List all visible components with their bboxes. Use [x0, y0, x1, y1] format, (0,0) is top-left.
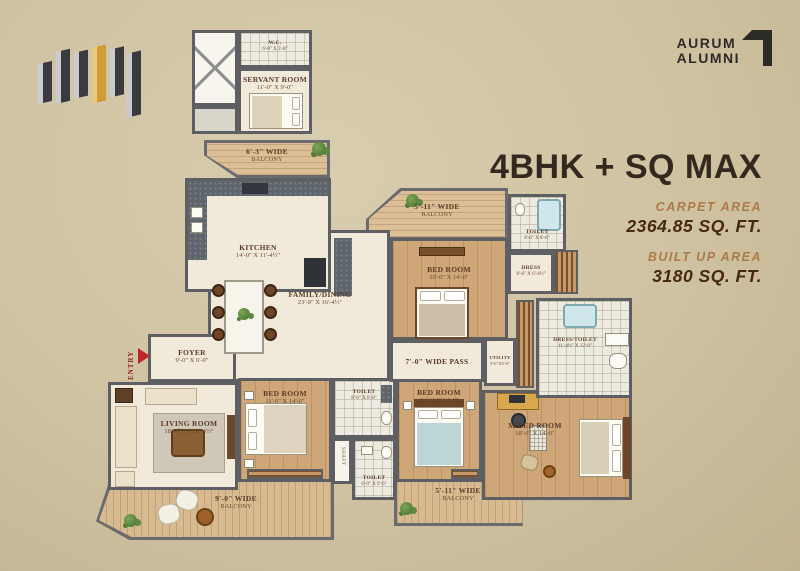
- dining-chair-icon: [264, 284, 277, 297]
- corner-bracket-icon: [742, 24, 772, 66]
- nightstand: [403, 401, 412, 410]
- plant-icon: [400, 502, 413, 515]
- sink-icon: [191, 222, 203, 233]
- dining-chair-icon: [264, 306, 277, 319]
- wardrobe: [516, 300, 534, 388]
- side-table: [115, 388, 133, 403]
- coffee-table: [171, 429, 205, 457]
- shelf-grid: [529, 425, 547, 451]
- wc-pan-icon: [515, 203, 525, 216]
- bed-furniture: [579, 419, 623, 477]
- dining-chair-icon: [264, 328, 277, 341]
- utility-room: UTILITY3'-6"X5'-6": [484, 338, 516, 386]
- bedroom-3: BED ROOM10'-0" X 14'-0": [390, 238, 508, 340]
- bathtub-icon: [563, 304, 597, 328]
- unit-title: 4BHK + SQ MAX: [490, 148, 762, 187]
- bed-furniture: [414, 407, 464, 467]
- fridge-icon: [304, 258, 326, 287]
- shaft-label: SHAFT: [340, 447, 345, 483]
- bathtub-icon: [537, 199, 561, 231]
- nightstand: [244, 459, 254, 468]
- bedroom1-label: BED ROOM: [241, 389, 329, 398]
- hob-icon: [242, 183, 268, 194]
- dress-toilet-label: DRESS/TOILET: [541, 337, 609, 344]
- wc-label: W.C.: [241, 40, 309, 47]
- wc-pan-icon: [609, 353, 627, 369]
- bed-furniture: [245, 403, 307, 455]
- pouf-icon: [543, 465, 556, 478]
- living-room: LIVING ROOM18'-4½" X 20'-4½": [108, 382, 238, 490]
- toilet-bottom-label: TOILET: [355, 475, 393, 482]
- vanity-counter: [381, 385, 392, 403]
- monitor-icon: [509, 395, 525, 403]
- servant-room-label: SERVANT ROOM: [241, 75, 309, 84]
- sofa-furniture: [115, 406, 137, 468]
- utility-label: UTILITY: [487, 355, 513, 361]
- dining-chair-icon: [212, 328, 225, 341]
- entry-label: ENTRY: [127, 340, 135, 380]
- bedroom-1: BED ROOM11'-0" X 14'-0": [238, 378, 332, 482]
- dresser: [419, 247, 465, 256]
- brand-line2: ALUMNI: [677, 51, 740, 66]
- shaft-strip: SHAFT: [332, 438, 352, 484]
- floorplan-brochure: AURUM ALUMNI 4BHK + SQ MAX CARPET AREA 2…: [0, 0, 800, 571]
- platform-counter: [334, 238, 352, 296]
- brand-line1: AURUM: [677, 36, 740, 51]
- sofa-furniture: [145, 388, 197, 405]
- nightstand: [244, 391, 254, 400]
- service-ledge: [192, 106, 238, 134]
- armchair-furniture: [115, 471, 135, 487]
- table-plant-icon: [238, 308, 250, 320]
- bed-furniture: [249, 93, 303, 129]
- nightstand: [466, 401, 475, 410]
- headboard: [414, 399, 464, 407]
- wc-room: W.C.6'-0" X 3'-8": [238, 30, 312, 68]
- foyer-label: FOYER: [151, 348, 233, 357]
- duct-shaft: [192, 30, 238, 106]
- wardrobe: [451, 469, 479, 479]
- toilet-top: TOILET8'-6" X 8'-6": [508, 194, 566, 252]
- bedroom-2: BED ROOM11'-6" X 14'-0": [396, 378, 482, 482]
- bedroom2-label: BED ROOM: [399, 388, 479, 397]
- sink-icon: [191, 207, 203, 218]
- headboard: [623, 417, 631, 479]
- building-illustration: [26, 8, 156, 128]
- foyer-room: FOYER9'-0" X 6'-0": [148, 334, 236, 382]
- pouf-icon: [196, 508, 214, 526]
- dining-chair-icon: [212, 306, 225, 319]
- wardrobe: [247, 469, 323, 479]
- dress-label: DRESS: [511, 265, 551, 272]
- plant-icon: [124, 514, 137, 527]
- balcony-top-left: 6'-3" WIDEBALCONY: [204, 140, 330, 178]
- dress-room: DRESS8'-6" X 6'-4½": [508, 252, 554, 294]
- toilet-mid: TOILET8'-6" X 6'-0": [332, 378, 396, 438]
- dress-toilet-room: DRESS/TOILET11'-4½" X 12'-0": [536, 298, 632, 398]
- accent-chair-icon: [519, 453, 539, 472]
- passage-label: 7'-0" WIDE PASS: [393, 357, 481, 366]
- plant-icon: [406, 194, 419, 207]
- entry-arrow-icon: [138, 348, 150, 364]
- wardrobe: [554, 250, 578, 294]
- passage: 7'-0" WIDE PASS: [390, 340, 484, 382]
- tv-unit: [227, 415, 235, 459]
- servant-room: SERVANT ROOM11'-0" X 9'-0": [238, 68, 312, 134]
- basin-icon: [361, 446, 373, 455]
- wc-pan-icon: [381, 411, 392, 425]
- plant-icon: [312, 142, 326, 156]
- master-bedroom: M.BED ROOM18'-0" X 14'-0": [482, 390, 632, 500]
- desk-chair-icon: [511, 413, 526, 428]
- brand-logo: AURUM ALUMNI: [677, 36, 772, 66]
- kitchen-label: KITCHEN: [188, 243, 328, 252]
- wc-pan-icon: [381, 446, 392, 459]
- bedroom3-label: BED ROOM: [393, 265, 505, 274]
- dining-chair-icon: [212, 284, 225, 297]
- vanity-icon: [605, 333, 629, 346]
- toilet-bottom: TOILET6'-0" X 9'-6": [352, 438, 396, 500]
- kitchen-room: KITCHEN14'-0" X 11'-4½": [185, 178, 331, 292]
- bed-furniture: [415, 287, 469, 339]
